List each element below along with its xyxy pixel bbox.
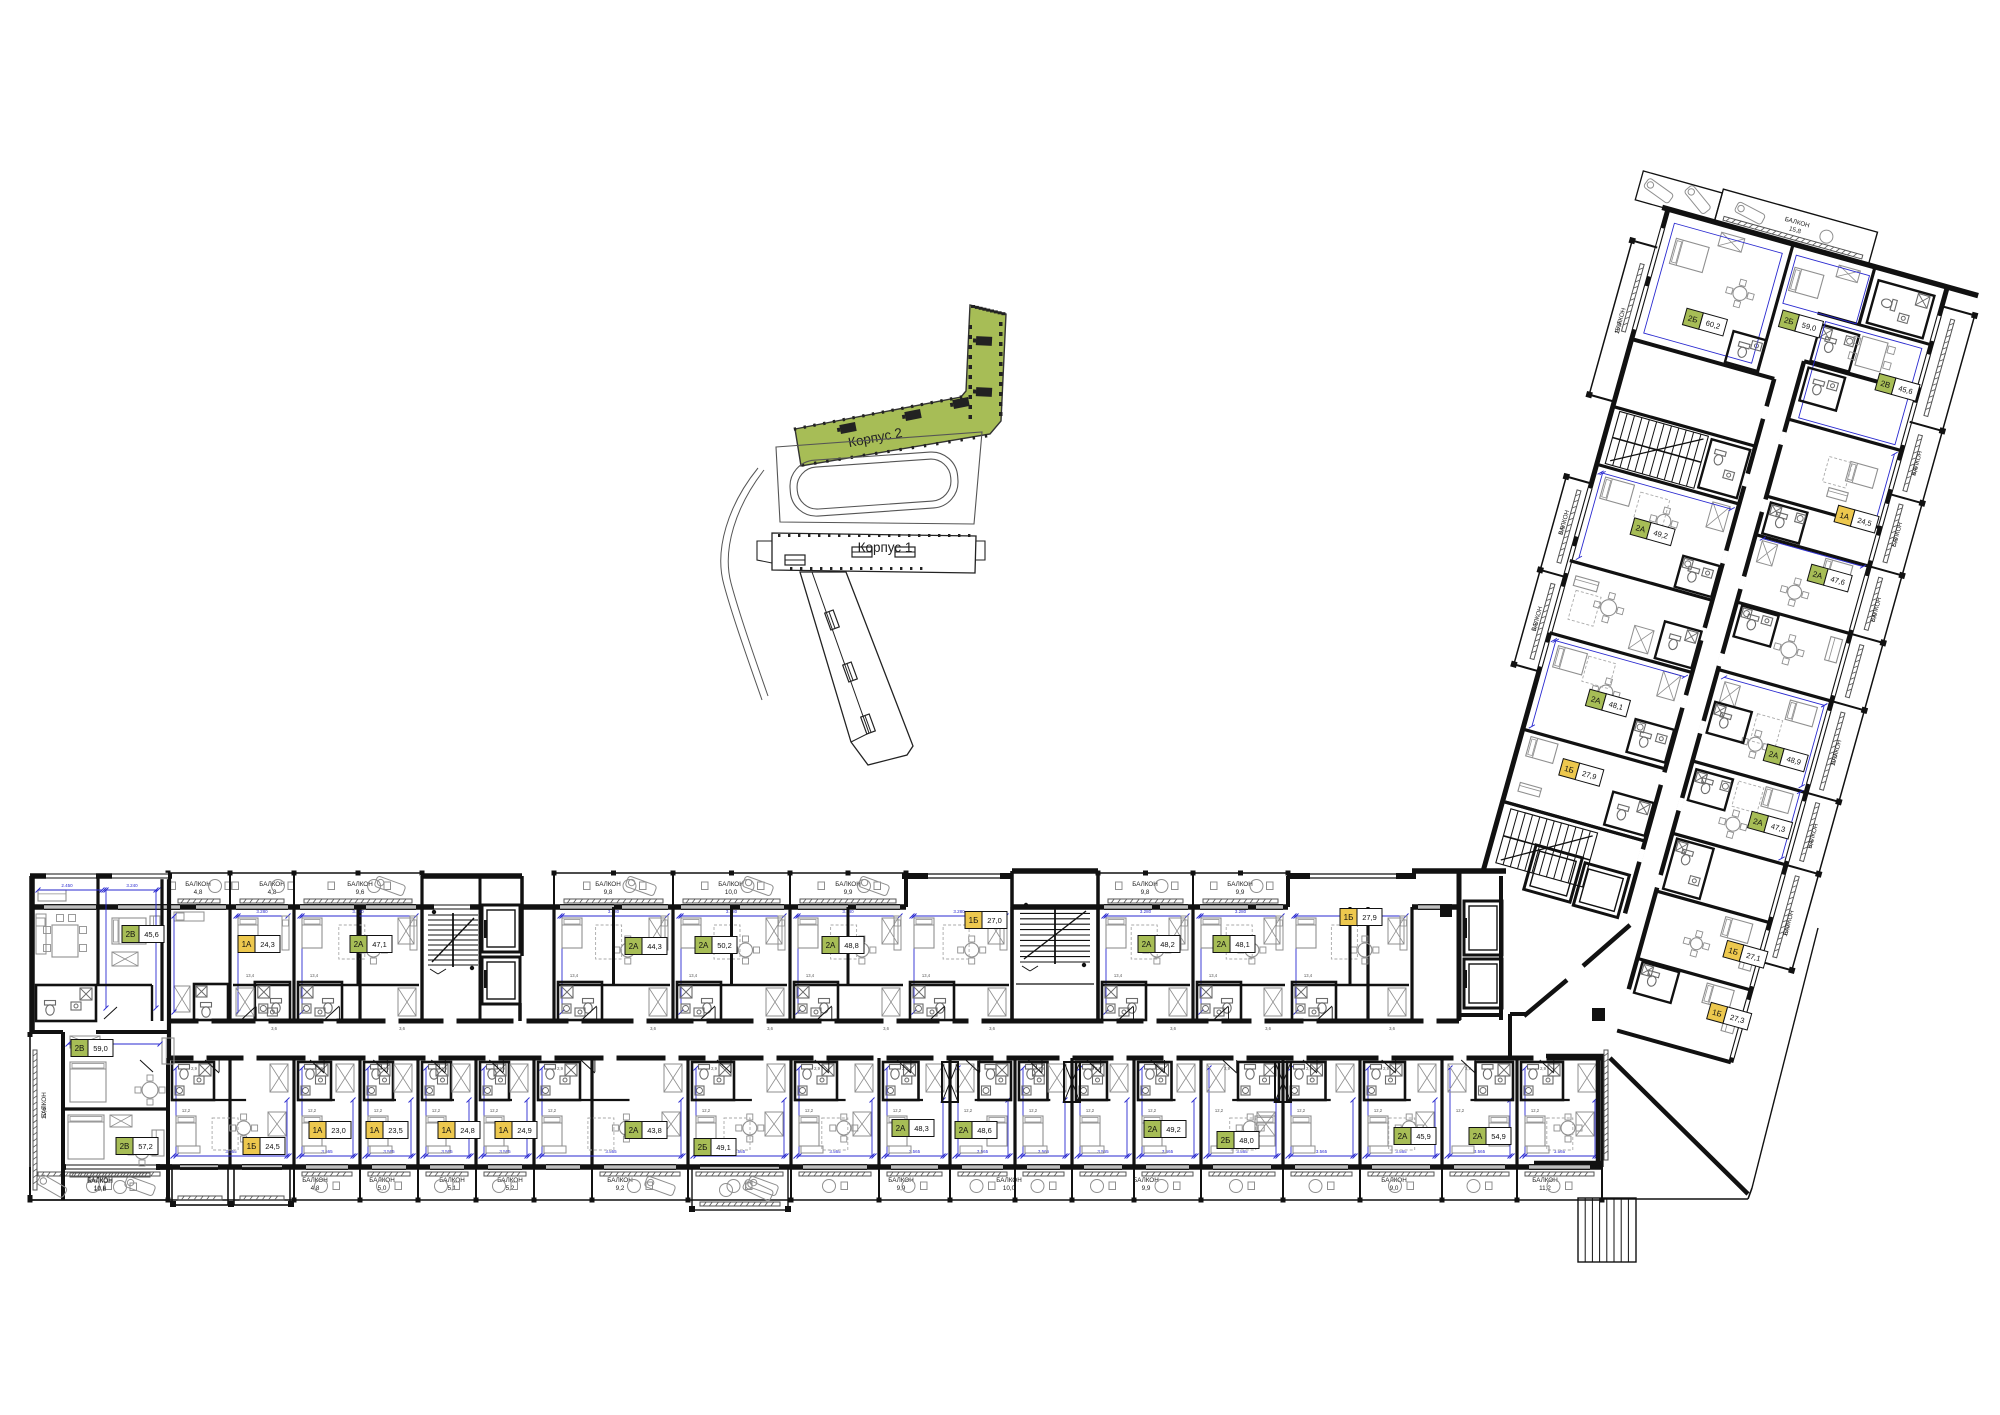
svg-text:2,9: 2,9 (441, 1066, 447, 1071)
svg-text:БАЛКОН: БАЛКОН (1227, 881, 1253, 888)
svg-text:9,9: 9,9 (844, 889, 853, 896)
svg-text:10,0: 10,0 (725, 889, 738, 896)
svg-text:12,2: 12,2 (964, 1108, 973, 1113)
svg-text:45,9: 45,9 (1416, 1132, 1431, 1141)
svg-text:12,2: 12,2 (1531, 1108, 1540, 1113)
svg-text:БАЛКОН: БАЛКОН (497, 1177, 523, 1184)
svg-text:57,2: 57,2 (138, 1142, 153, 1151)
svg-text:3,6: 3,6 (271, 1026, 277, 1031)
svg-text:9,8: 9,8 (604, 889, 613, 896)
svg-text:2В: 2В (126, 930, 136, 939)
svg-text:БАЛКОН: БАЛКОН (1381, 1177, 1407, 1184)
svg-text:13,4: 13,4 (310, 973, 319, 978)
svg-text:2.450: 2.450 (61, 883, 73, 888)
svg-text:1А: 1А (242, 940, 252, 949)
svg-text:12,2: 12,2 (490, 1108, 499, 1113)
svg-text:2,9: 2,9 (902, 1066, 908, 1071)
svg-text:9,2: 9,2 (616, 1185, 625, 1192)
svg-text:2,9: 2,9 (973, 1066, 979, 1071)
svg-text:44,3: 44,3 (647, 942, 662, 951)
svg-text:13,4: 13,4 (922, 973, 931, 978)
svg-text:2Б: 2Б (1221, 1136, 1231, 1145)
svg-text:БАЛКОН: БАЛКОН (607, 1177, 633, 1184)
svg-text:9,8: 9,8 (1141, 889, 1150, 896)
svg-text:3.240: 3.240 (126, 883, 138, 888)
svg-text:3,6: 3,6 (1265, 1026, 1271, 1031)
svg-text:БАЛКОН: БАЛКОН (1132, 881, 1158, 888)
svg-text:13,4: 13,4 (689, 973, 698, 978)
svg-text:27,0: 27,0 (987, 916, 1002, 925)
svg-text:13,4: 13,4 (246, 973, 255, 978)
svg-text:2,9: 2,9 (711, 1066, 717, 1071)
svg-text:3.280: 3.280 (953, 909, 965, 914)
svg-text:2А: 2А (1217, 940, 1227, 949)
svg-text:13,4: 13,4 (570, 973, 579, 978)
svg-text:3,6: 3,6 (650, 1026, 656, 1031)
svg-text:3,6: 3,6 (399, 1026, 405, 1031)
svg-text:4,8: 4,8 (194, 889, 203, 896)
svg-text:12,2: 12,2 (893, 1108, 902, 1113)
svg-text:9,9: 9,9 (1142, 1185, 1151, 1192)
svg-text:12,2: 12,2 (1148, 1108, 1157, 1113)
svg-text:48,2: 48,2 (1160, 940, 1175, 949)
svg-text:3,6: 3,6 (989, 1026, 995, 1031)
svg-text:47,1: 47,1 (372, 940, 387, 949)
svg-text:3.565: 3.565 (1316, 1149, 1328, 1154)
svg-text:БАЛКОН: БАЛКОН (996, 1177, 1022, 1184)
svg-text:2А: 2А (1142, 940, 1152, 949)
svg-text:2,9: 2,9 (1465, 1066, 1471, 1071)
svg-text:2А: 2А (959, 1126, 969, 1135)
svg-text:3.280: 3.280 (256, 909, 268, 914)
svg-text:48,8: 48,8 (844, 941, 859, 950)
svg-text:10,8: 10,8 (94, 1186, 107, 1193)
svg-text:54,9: 54,9 (1491, 1132, 1506, 1141)
svg-text:2,9: 2,9 (814, 1066, 820, 1071)
svg-text:23,0: 23,0 (331, 1126, 346, 1135)
svg-text:12,2: 12,2 (1456, 1108, 1465, 1113)
svg-text:БАЛКОН: БАЛКОН (87, 1178, 113, 1185)
svg-text:БАЛКОН: БАЛКОН (1532, 1177, 1558, 1184)
svg-text:49,2: 49,2 (1166, 1125, 1181, 1134)
svg-text:12,2: 12,2 (548, 1108, 557, 1113)
svg-text:2,9: 2,9 (499, 1066, 505, 1071)
svg-text:9,6: 9,6 (356, 889, 365, 896)
svg-text:1А: 1А (499, 1126, 509, 1135)
svg-text:12,2: 12,2 (432, 1108, 441, 1113)
svg-text:БАЛКОН: БАЛКОН (369, 1177, 395, 1184)
svg-text:49,1: 49,1 (716, 1143, 731, 1152)
svg-text:БАЛКОН: БАЛКОН (439, 1177, 465, 1184)
svg-text:43,8: 43,8 (647, 1126, 662, 1135)
svg-text:2,9: 2,9 (1095, 1066, 1101, 1071)
svg-text:1Б: 1Б (247, 1142, 257, 1151)
svg-text:48,6: 48,6 (977, 1126, 992, 1135)
svg-text:БАЛКОН: БАЛКОН (185, 881, 211, 888)
svg-text:59,0: 59,0 (93, 1044, 108, 1053)
svg-text:13,4: 13,4 (1209, 973, 1218, 978)
svg-text:2,9: 2,9 (1224, 1066, 1230, 1071)
svg-text:3.565: 3.565 (1474, 1149, 1486, 1154)
svg-text:48,3: 48,3 (914, 1124, 929, 1133)
svg-text:БАЛКОН: БАЛКОН (718, 881, 744, 888)
svg-text:1Б: 1Б (1344, 913, 1354, 922)
svg-text:2А: 2А (826, 941, 836, 950)
svg-text:2,9: 2,9 (191, 1066, 197, 1071)
svg-text:3,6: 3,6 (1389, 1026, 1395, 1031)
svg-text:10,6: 10,6 (41, 1106, 48, 1119)
svg-text:Корпус 1: Корпус 1 (858, 540, 913, 555)
svg-text:БАЛКОН: БАЛКОН (595, 881, 621, 888)
svg-text:12,2: 12,2 (308, 1108, 317, 1113)
svg-text:2А: 2А (354, 940, 364, 949)
svg-text:10,0: 10,0 (1003, 1185, 1016, 1192)
svg-text:27,9: 27,9 (1362, 913, 1377, 922)
svg-text:9,9: 9,9 (1236, 889, 1245, 896)
svg-text:12,2: 12,2 (182, 1108, 191, 1113)
svg-text:2А: 2А (629, 1126, 639, 1135)
svg-text:2В: 2В (75, 1044, 85, 1053)
svg-text:2А: 2А (1148, 1125, 1158, 1134)
svg-text:45,6: 45,6 (144, 930, 159, 939)
svg-text:13,4: 13,4 (1114, 973, 1123, 978)
svg-text:2,9: 2,9 (317, 1066, 323, 1071)
svg-text:2А: 2А (1473, 1132, 1483, 1141)
svg-text:2,9: 2,9 (1038, 1066, 1044, 1071)
svg-text:24,9: 24,9 (517, 1126, 532, 1135)
svg-text:12,2: 12,2 (805, 1108, 814, 1113)
svg-text:24,8: 24,8 (460, 1126, 475, 1135)
svg-text:3,6: 3,6 (883, 1026, 889, 1031)
svg-text:2,9: 2,9 (557, 1066, 563, 1071)
svg-text:2Б: 2Б (698, 1143, 708, 1152)
svg-text:50,2: 50,2 (717, 941, 732, 950)
svg-text:1Б: 1Б (969, 916, 979, 925)
svg-text:2В: 2В (120, 1142, 130, 1151)
svg-text:БАЛКОН: БАЛКОН (888, 1177, 914, 1184)
svg-text:2,9: 2,9 (1540, 1066, 1546, 1071)
svg-text:12,2: 12,2 (702, 1108, 711, 1113)
svg-text:5,2: 5,2 (506, 1185, 515, 1192)
svg-text:48,0: 48,0 (1239, 1136, 1254, 1145)
svg-text:1А: 1А (313, 1126, 323, 1135)
svg-text:24,5: 24,5 (265, 1142, 280, 1151)
svg-text:12,2: 12,2 (1086, 1108, 1095, 1113)
svg-text:3,6: 3,6 (1170, 1026, 1176, 1031)
svg-text:2А: 2А (896, 1124, 906, 1133)
svg-text:2А: 2А (629, 942, 639, 951)
svg-text:23,5: 23,5 (388, 1126, 403, 1135)
svg-text:12,2: 12,2 (374, 1108, 383, 1113)
svg-text:2А: 2А (699, 941, 709, 950)
svg-text:12,2: 12,2 (1029, 1108, 1038, 1113)
svg-text:3.280: 3.280 (1140, 909, 1152, 914)
svg-text:3.280: 3.280 (1235, 909, 1247, 914)
svg-text:12,2: 12,2 (1374, 1108, 1383, 1113)
svg-text:5,1: 5,1 (448, 1185, 457, 1192)
svg-text:1А: 1А (442, 1126, 452, 1135)
svg-text:2,9: 2,9 (1306, 1066, 1312, 1071)
svg-text:1А: 1А (370, 1126, 380, 1135)
svg-text:2,9: 2,9 (1157, 1066, 1163, 1071)
svg-text:13,4: 13,4 (806, 973, 815, 978)
svg-text:12,2: 12,2 (1297, 1108, 1306, 1113)
svg-text:24,3: 24,3 (260, 940, 275, 949)
svg-text:2,9: 2,9 (1383, 1066, 1389, 1071)
svg-text:12,2: 12,2 (1215, 1108, 1224, 1113)
svg-text:13,4: 13,4 (1304, 973, 1313, 978)
svg-text:3,6: 3,6 (767, 1026, 773, 1031)
svg-text:2А: 2А (1398, 1132, 1408, 1141)
svg-text:2,9: 2,9 (383, 1066, 389, 1071)
svg-text:48,1: 48,1 (1235, 940, 1250, 949)
